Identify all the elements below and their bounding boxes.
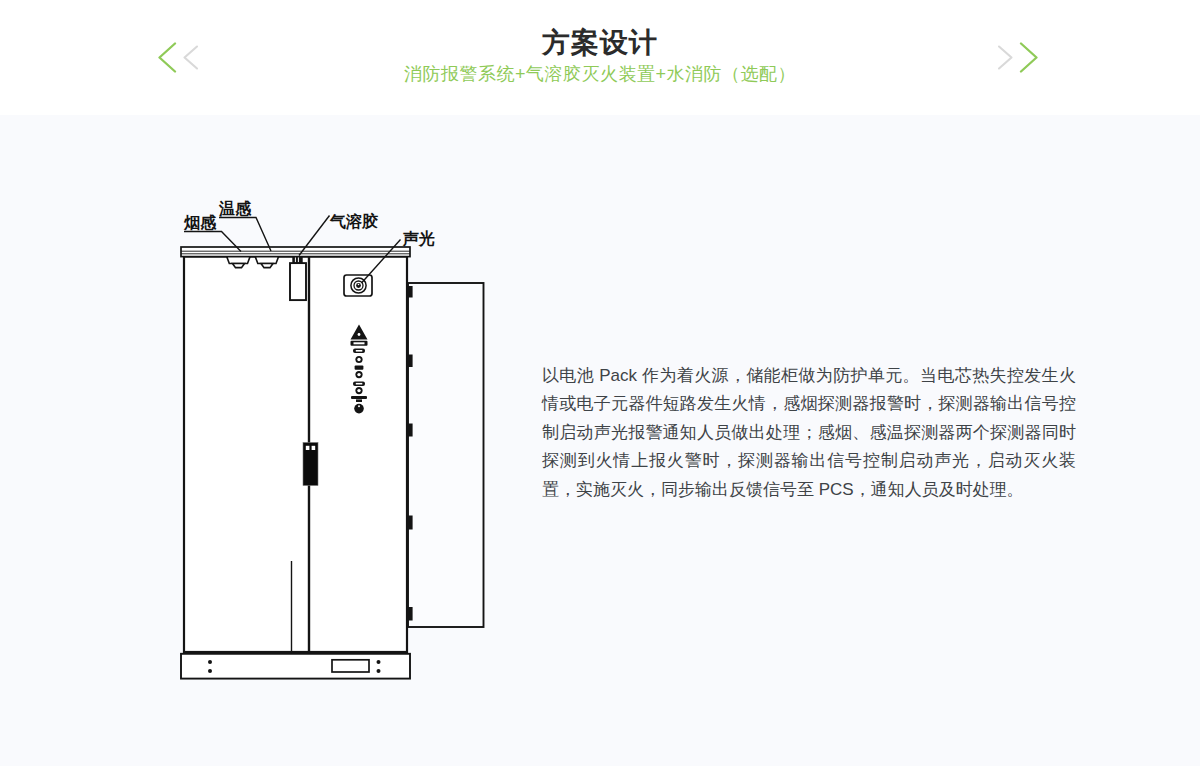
chevron-right-icon: [994, 42, 1040, 73]
smoke-label: 烟感: [183, 214, 217, 231]
carousel-next-button[interactable]: [994, 42, 1040, 73]
cabinet-door: [407, 283, 483, 627]
callout-line-temp: [219, 218, 271, 252]
cabinet-diagram: 烟感 温感 气溶胶 声光: [160, 192, 500, 692]
page: 方案设计 消防报警系统+气溶胶灭火装置+水消防（选配）: [0, 0, 1200, 766]
sound-light-label: 声光: [402, 230, 435, 247]
carousel-prev-button[interactable]: [156, 42, 202, 73]
cabinet-top-rail: [181, 247, 410, 257]
chevron-left-icon: [156, 42, 202, 73]
cabinet-body: [184, 257, 407, 653]
aerosol-label: 气溶胶: [329, 212, 378, 230]
sound-light-alarm: [344, 275, 372, 296]
description-text: 以电池 Pack 作为着火源，储能柜做为防护单元。当电芯热失控发生火情或电子元器…: [542, 362, 1076, 504]
temp-label: 温感: [218, 200, 252, 217]
cabinet-base: [181, 654, 410, 679]
aerosol-device: [290, 257, 306, 301]
header: 方案设计 消防报警系统+气溶胶灭火装置+水消防（选配）: [0, 0, 1200, 115]
base-nameplate: [332, 660, 369, 672]
door-handle: [303, 443, 318, 486]
